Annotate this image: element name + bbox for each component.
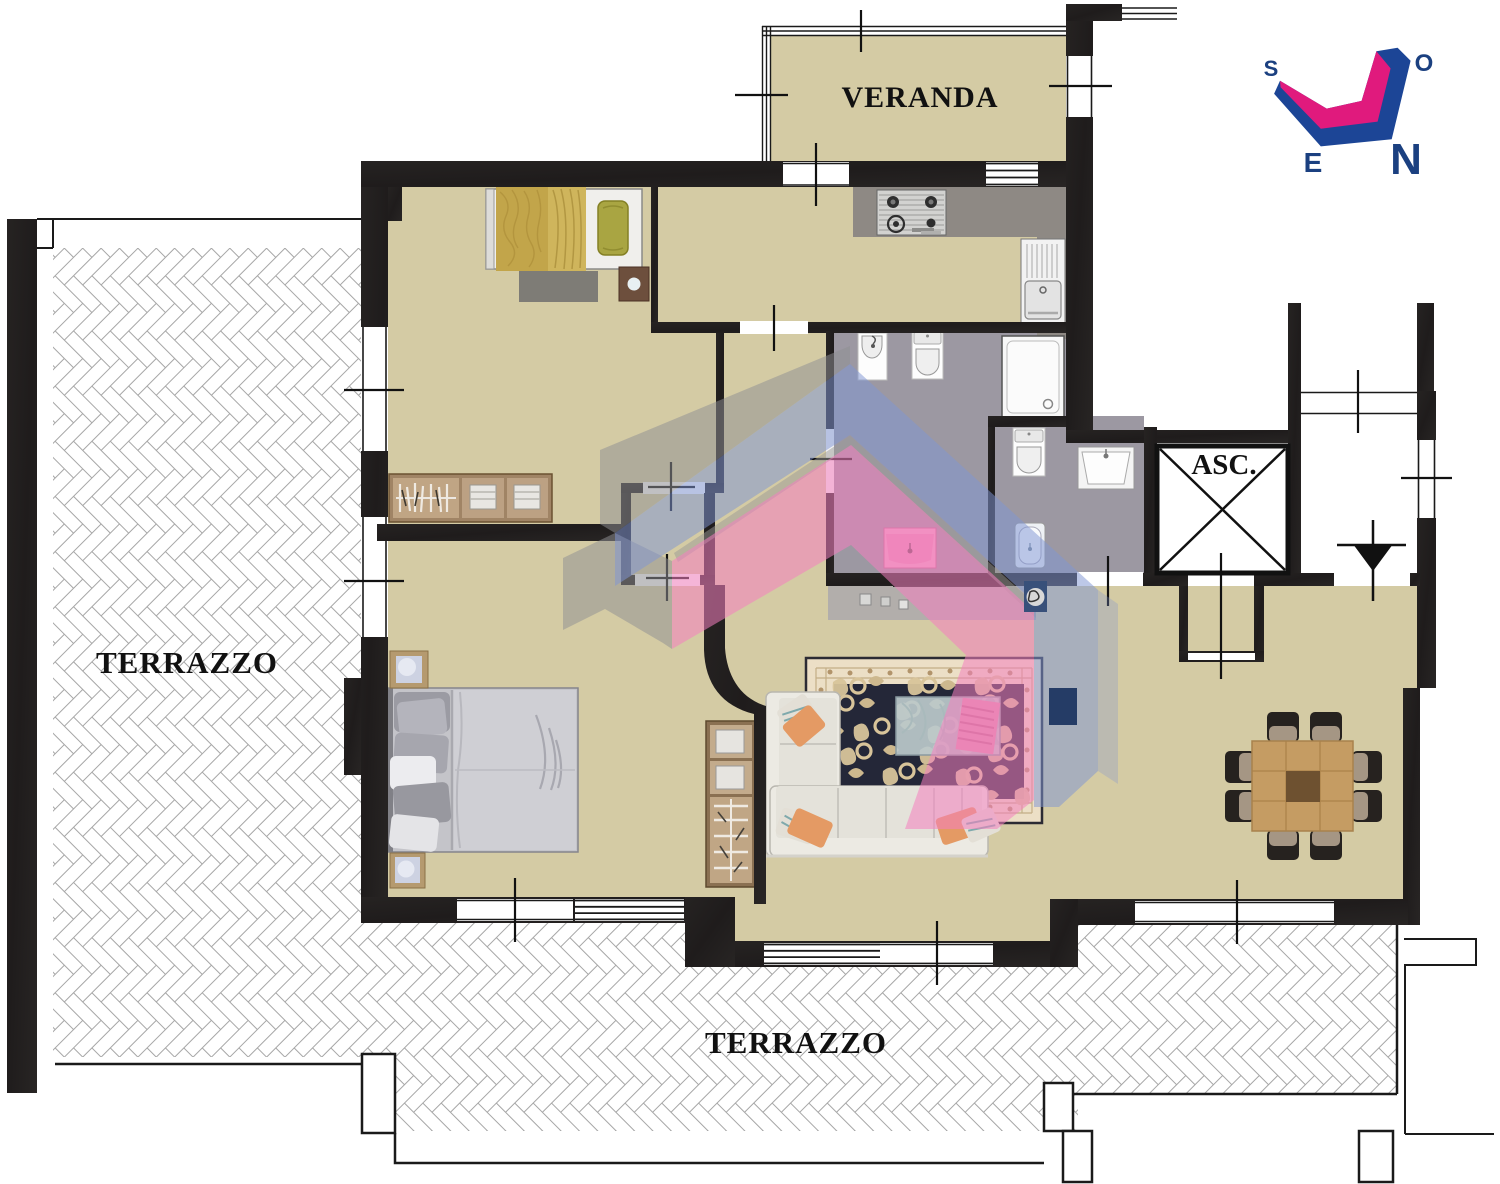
svg-text:E: E — [1304, 147, 1323, 178]
svg-text:ASC.: ASC. — [1191, 449, 1256, 481]
svg-text:S: S — [1264, 56, 1279, 81]
svg-text:VERANDA: VERANDA — [842, 81, 999, 114]
svg-text:O: O — [1415, 50, 1434, 77]
svg-text:TERRAZZO: TERRAZZO — [96, 645, 278, 680]
svg-text:N: N — [1390, 135, 1422, 184]
svg-text:TERRAZZO: TERRAZZO — [705, 1025, 887, 1060]
